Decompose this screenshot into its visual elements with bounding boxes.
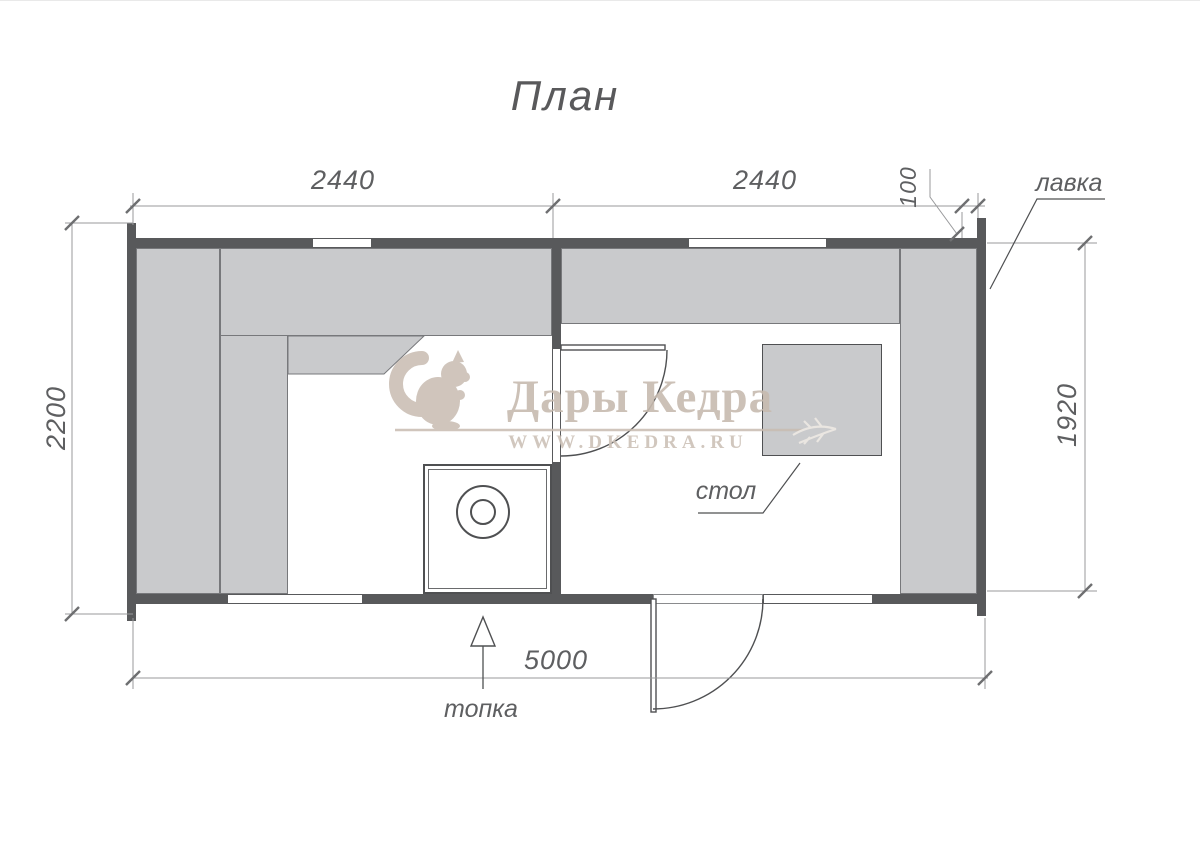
squirrel-logo-icon bbox=[396, 350, 470, 431]
dim-right: 1920 bbox=[1042, 375, 1092, 455]
firebox-arrow-icon bbox=[471, 617, 495, 689]
window-top-left bbox=[312, 238, 372, 248]
window-bottom-right bbox=[763, 594, 873, 604]
bench-left-steam-room bbox=[136, 248, 220, 594]
firebox-label: топка bbox=[421, 693, 541, 725]
wall-left bbox=[127, 223, 136, 621]
bench-right-rest-room bbox=[900, 248, 977, 594]
page-title: План bbox=[495, 71, 635, 121]
exterior-door bbox=[651, 599, 763, 712]
table-label: стол bbox=[676, 475, 776, 507]
dim-bottom: 5000 bbox=[496, 644, 616, 676]
dim-top-right: 2440 bbox=[705, 164, 825, 196]
wall-right bbox=[977, 218, 986, 616]
bench-label: лавка bbox=[1019, 167, 1119, 199]
exterior-door-opening bbox=[653, 594, 763, 604]
bench-lower-tier-steam-room bbox=[220, 335, 288, 594]
watermark-site: WWW.DKEDRA.RU bbox=[478, 431, 778, 455]
watermark-brand: Дары Кедра bbox=[470, 368, 810, 426]
dim-left: 2200 bbox=[31, 378, 81, 458]
floor-plan-drawing: План bbox=[0, 0, 1200, 849]
bench-top-steam-room bbox=[220, 248, 552, 336]
stove-burner-inner-icon bbox=[470, 499, 496, 525]
bench-leader bbox=[990, 199, 1105, 289]
dim-top-corner: 100 bbox=[883, 159, 933, 215]
bench-lower-tier-angled-end bbox=[288, 336, 424, 374]
window-top-right bbox=[688, 238, 827, 248]
dim-top-left: 2440 bbox=[283, 164, 403, 196]
window-bottom-left bbox=[227, 594, 363, 604]
bench-top-rest-room bbox=[561, 248, 900, 324]
